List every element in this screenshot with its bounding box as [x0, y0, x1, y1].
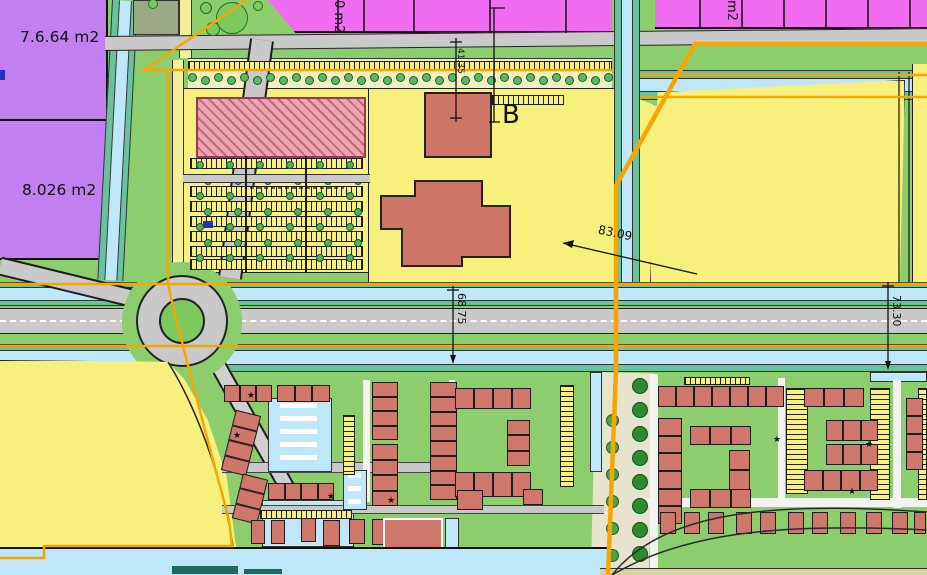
yellow-parcel-right — [650, 80, 905, 284]
tree-icon — [324, 239, 332, 247]
tree-icon — [234, 208, 242, 216]
hatched-building — [196, 97, 366, 158]
canal-vertical — [614, 0, 640, 286]
house-row — [690, 489, 751, 508]
tree-icon — [226, 161, 234, 169]
tree-icon — [316, 192, 324, 200]
house-row — [455, 388, 531, 409]
tree-icon — [591, 76, 600, 85]
tree-icon — [448, 73, 457, 82]
detached-house — [866, 512, 882, 534]
quay-block-2 — [244, 569, 282, 574]
parking-stalls — [190, 201, 363, 212]
parking-stalls — [190, 216, 363, 227]
dim-label-right: 73.30 — [890, 295, 903, 327]
tree-icon — [279, 76, 288, 85]
detached-house — [271, 520, 285, 544]
tree-icon — [266, 73, 275, 82]
tree-icon — [196, 254, 204, 262]
detached-house — [323, 520, 340, 546]
tree-icon — [370, 73, 379, 82]
tree-icon — [226, 254, 234, 262]
parking-lane — [183, 174, 370, 183]
parcel-area-label-1: 7.6.64 m2 — [20, 28, 99, 46]
house-row — [804, 388, 864, 407]
tree-icon — [196, 192, 204, 200]
tree-icon — [606, 522, 619, 535]
tree-icon — [409, 76, 418, 85]
tree-icon — [632, 546, 648, 562]
star-marker: ★ — [233, 432, 241, 441]
house-row — [729, 450, 750, 490]
tree-icon — [604, 73, 613, 82]
pink-right-label: m2 — [724, 0, 739, 21]
canal-vertical-water — [621, 0, 633, 286]
building-b-label: B — [502, 100, 520, 130]
tree-icon — [200, 2, 212, 14]
tree-icon — [294, 239, 302, 247]
tree-icon — [264, 239, 272, 247]
tree-icon — [487, 76, 496, 85]
roundabout-center — [159, 298, 205, 344]
tree-icon — [632, 522, 648, 538]
house-row — [690, 426, 751, 445]
tree-icon — [318, 73, 327, 82]
tree-icon — [632, 378, 648, 394]
house-row — [906, 398, 923, 470]
tree-icon — [578, 73, 587, 82]
tree-icon — [552, 73, 561, 82]
tree-icon — [383, 76, 392, 85]
tree-icon — [316, 161, 324, 169]
house-row — [658, 418, 682, 524]
detached-house — [301, 518, 316, 542]
parking-stalls — [188, 61, 612, 71]
tree-icon — [316, 254, 324, 262]
tree-icon — [344, 73, 353, 82]
tree-icon — [201, 76, 210, 85]
star-marker: ★ — [848, 488, 856, 497]
house-row — [372, 382, 398, 440]
house-row — [658, 386, 784, 407]
tree-icon — [294, 208, 302, 216]
detached-house — [914, 512, 926, 534]
tree-icon — [513, 76, 522, 85]
tree-icon — [606, 414, 619, 427]
parcel-area-label-2: 8.026 m2 — [22, 181, 96, 199]
tree-icon — [435, 76, 444, 85]
tree-icon — [354, 239, 362, 247]
detached-house — [812, 512, 828, 534]
tree-icon — [346, 254, 354, 262]
tree-icon — [204, 239, 212, 247]
parking-stalls — [190, 186, 363, 197]
quay-block-1 — [172, 566, 238, 574]
tree-icon — [396, 73, 405, 82]
tree-icon — [253, 1, 263, 11]
tree-icon — [606, 468, 619, 481]
tree-icon — [526, 73, 535, 82]
tree-icon — [346, 161, 354, 169]
building-b — [424, 92, 492, 158]
pink-strip-right — [655, 0, 927, 29]
detached-house — [760, 512, 776, 534]
detached-house — [736, 512, 752, 534]
tree-icon — [286, 161, 294, 169]
tree-icon — [632, 498, 648, 514]
parking-marker-blue — [203, 221, 213, 228]
parking-stalls — [684, 377, 750, 385]
star-marker: ★ — [387, 497, 395, 506]
zoning-map: ★★★★★★★ — [0, 0, 927, 575]
tree-icon — [331, 76, 340, 85]
parking-stalls — [343, 415, 355, 475]
tree-icon — [292, 73, 301, 82]
detached-house — [457, 490, 483, 510]
tree-icon — [227, 76, 236, 85]
yellow-parcel-far-right — [912, 64, 927, 284]
house-row — [826, 420, 878, 441]
tree-icon — [256, 161, 264, 169]
star-marker: ★ — [327, 493, 335, 502]
tree-icon — [422, 73, 431, 82]
parking-stalls — [190, 259, 363, 270]
parking-stalls — [190, 246, 363, 257]
bottom-water — [0, 547, 608, 575]
tree-icon — [500, 73, 509, 82]
detached-house — [788, 512, 804, 534]
purple-edge-marker — [0, 70, 5, 80]
tree-icon — [286, 254, 294, 262]
tree-icon — [324, 208, 332, 216]
tree-icon — [305, 76, 314, 85]
tree-icon — [632, 402, 648, 418]
tree-icon — [346, 192, 354, 200]
dim-label-mid: 68.75 — [455, 293, 468, 325]
tree-icon — [196, 161, 204, 169]
tree-icon — [188, 73, 197, 82]
house-row — [430, 382, 457, 500]
star-marker: ★ — [865, 441, 873, 450]
bottom-khaki-strip — [600, 568, 927, 575]
tree-icon — [461, 76, 470, 85]
tree-icon — [240, 73, 249, 82]
house-row — [507, 420, 530, 466]
tree-icon — [606, 441, 619, 454]
parking-court — [268, 398, 332, 472]
parking-aisle-2 — [305, 156, 307, 272]
detached-house — [251, 520, 265, 544]
footpath — [650, 374, 658, 574]
parking-aisle-1 — [245, 156, 247, 272]
tree-icon — [539, 76, 548, 85]
detached-house — [523, 489, 543, 505]
tree-icon — [256, 192, 264, 200]
tree-icon — [354, 208, 362, 216]
tree-icon — [565, 76, 574, 85]
house-row — [277, 385, 330, 402]
tree-icon — [226, 223, 234, 231]
parking-court — [343, 470, 367, 510]
detached-house — [840, 512, 856, 534]
tree-icon — [264, 208, 272, 216]
detached-house — [684, 512, 700, 534]
tree-icon — [204, 208, 212, 216]
parking-stalls — [190, 158, 363, 169]
dim-label-top: 41.35 — [455, 48, 465, 74]
parking-stalls — [190, 231, 363, 242]
water-area — [445, 518, 459, 550]
purple-parcel-1 — [0, 0, 108, 121]
tree-icon — [286, 192, 294, 200]
tree-icon — [226, 192, 234, 200]
detached-house — [708, 512, 724, 534]
parking-stalls — [560, 385, 574, 487]
footpath — [893, 380, 901, 508]
tree-icon — [357, 76, 366, 85]
star-marker: ★ — [247, 392, 255, 401]
pink-left-label: 0 m2 — [331, 0, 346, 33]
tree-icon — [632, 450, 648, 466]
tree-icon — [606, 495, 619, 508]
detached-house — [660, 512, 676, 534]
yellow-parcel-bottomleft — [0, 360, 236, 547]
water-area — [590, 372, 602, 472]
tree-icon — [346, 223, 354, 231]
tree-icon — [234, 239, 242, 247]
detached-house — [349, 519, 365, 544]
tree-icon — [256, 223, 264, 231]
tree-icon — [632, 426, 648, 442]
highlight-building — [383, 518, 443, 550]
detached-house — [892, 512, 908, 534]
tree-icon — [632, 474, 648, 490]
tree-icon — [316, 223, 324, 231]
tree-icon — [256, 254, 264, 262]
house-row — [804, 470, 878, 491]
tree-icon — [474, 73, 483, 82]
tree-icon — [214, 73, 223, 82]
house-row — [268, 483, 334, 500]
tree-icon — [286, 223, 294, 231]
tree-icon — [253, 76, 262, 85]
tree-icon — [216, 2, 248, 34]
star-marker: ★ — [773, 436, 781, 445]
pink-strip-left — [268, 0, 612, 33]
